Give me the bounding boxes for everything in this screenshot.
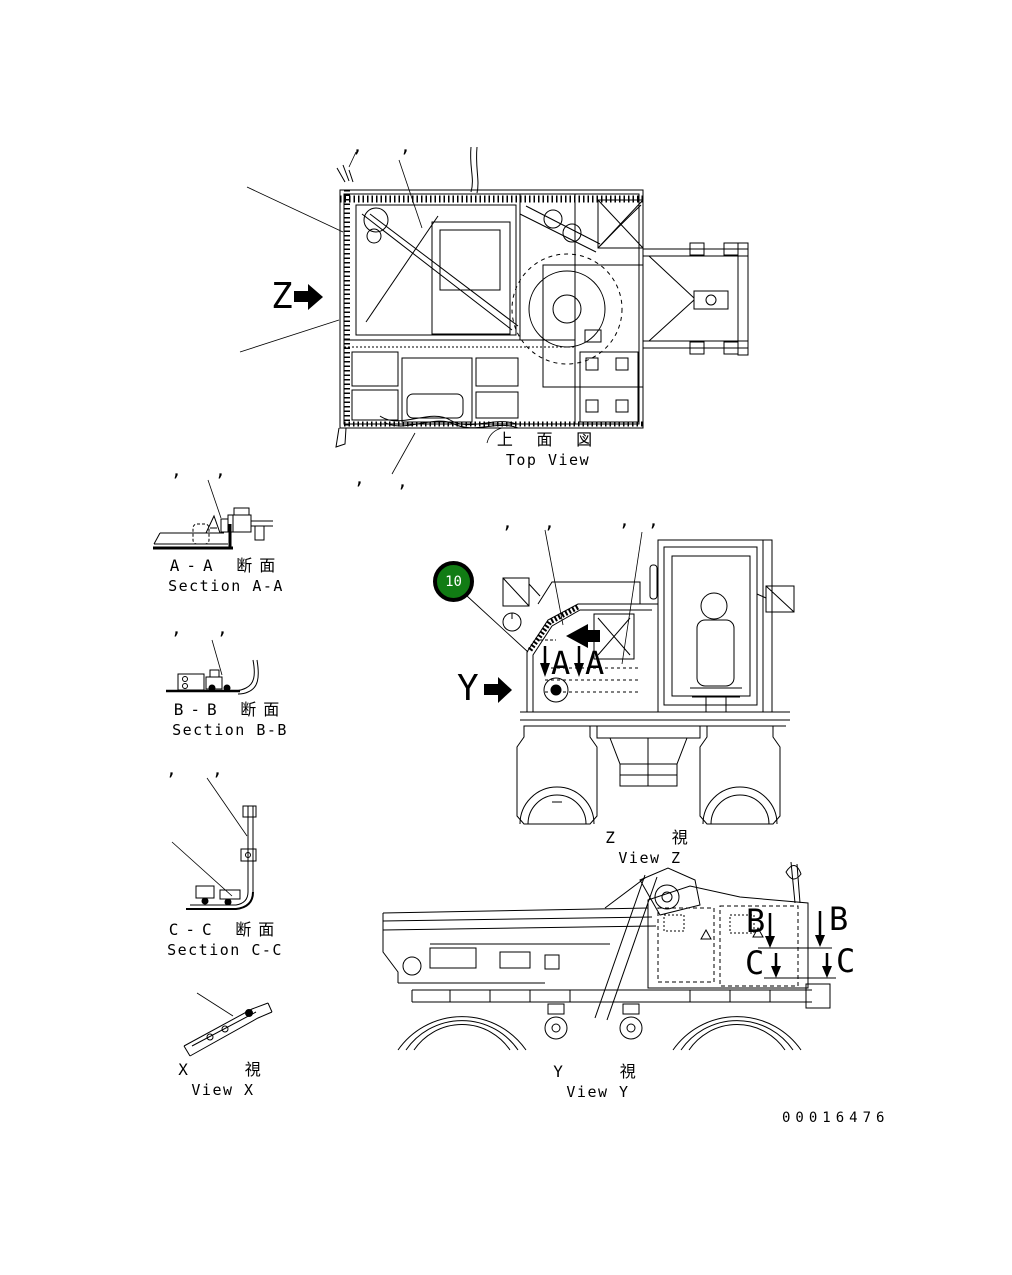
view-x-drawing [184, 1003, 272, 1056]
comma-mark: , [400, 136, 411, 157]
label-view-z: Z 視 View Z [605, 828, 695, 868]
section-c-arrows [764, 953, 836, 978]
label-view-z-jp: Z 視 [605, 828, 695, 848]
label-view-x-jp: X 視 [178, 1060, 268, 1080]
comma-mark: , [171, 618, 182, 639]
diagram-line-art: , , , , , , , , , , , , , , [0, 0, 1012, 1275]
marker-letter-z: Z [271, 276, 293, 317]
marker-letter-a-left: A [551, 644, 570, 682]
comma-mark: , [171, 460, 182, 481]
comma-mark: , [354, 468, 365, 489]
section-cc-drawing [186, 806, 256, 909]
label-section-cc: C-C 断面 Section C-C [167, 920, 283, 960]
label-top-view-jp: 上 面 図 [497, 430, 599, 450]
label-view-y-en: View Y [553, 1083, 643, 1102]
marker-letter-a-right: A [585, 644, 604, 682]
top-view-drawing [336, 147, 748, 447]
comma-mark: , [212, 759, 223, 780]
label-view-x: X 視 View X [178, 1060, 268, 1100]
comma-mark: , [166, 759, 177, 780]
parts-diagram-page: , , , , , , , , , , , , , , 10 Z Y A A B… [0, 0, 1012, 1275]
section-aa-drawing [153, 508, 273, 548]
label-section-bb: B-B 断面 Section B-B [172, 700, 288, 740]
marker-letter-c-right: C [836, 942, 855, 980]
marker-letter-b-right: B [829, 900, 848, 938]
part-callout-10[interactable]: 10 [433, 561, 474, 602]
z-direction-arrow [294, 284, 323, 310]
marker-letter-b-left: B [746, 902, 765, 940]
label-section-cc-en: Section C-C [167, 941, 283, 960]
section-bb-drawing [166, 660, 258, 694]
y-direction-arrow [484, 677, 512, 703]
label-view-z-en: View Z [605, 849, 695, 868]
label-view-x-en: View X [178, 1081, 268, 1100]
label-section-aa-jp: A-A 断面 [168, 556, 284, 576]
comma-mark: , [544, 512, 555, 533]
marker-letter-y: Y [457, 668, 479, 709]
sheet-number: 00016476 [782, 1110, 889, 1126]
label-view-y-jp: Y 視 [553, 1062, 643, 1082]
label-top-view-en: Top View [497, 451, 599, 470]
label-top-view: 上 面 図 Top View [497, 430, 599, 470]
comma-mark: , [397, 471, 408, 492]
comma-mark: , [217, 618, 228, 639]
label-view-y: Y 視 View Y [553, 1062, 643, 1102]
callout-leader-line [467, 596, 528, 652]
comma-mark: , [502, 512, 513, 533]
part-callout-number: 10 [445, 574, 462, 590]
view-z-drawing [503, 540, 794, 824]
label-section-cc-jp: C-C 断面 [167, 920, 283, 940]
comma-mark: , [648, 510, 659, 531]
label-section-bb-en: Section B-B [172, 721, 288, 740]
label-section-aa-en: Section A-A [168, 577, 284, 596]
section-b-arrows [758, 911, 832, 948]
comma-mark: , [215, 460, 226, 481]
marker-letter-c-left: C [745, 944, 764, 982]
label-section-bb-jp: B-B 断面 [172, 700, 288, 720]
comma-mark: , [352, 136, 363, 157]
comma-mark: , [619, 510, 630, 531]
label-section-aa: A-A 断面 Section A-A [168, 556, 284, 596]
